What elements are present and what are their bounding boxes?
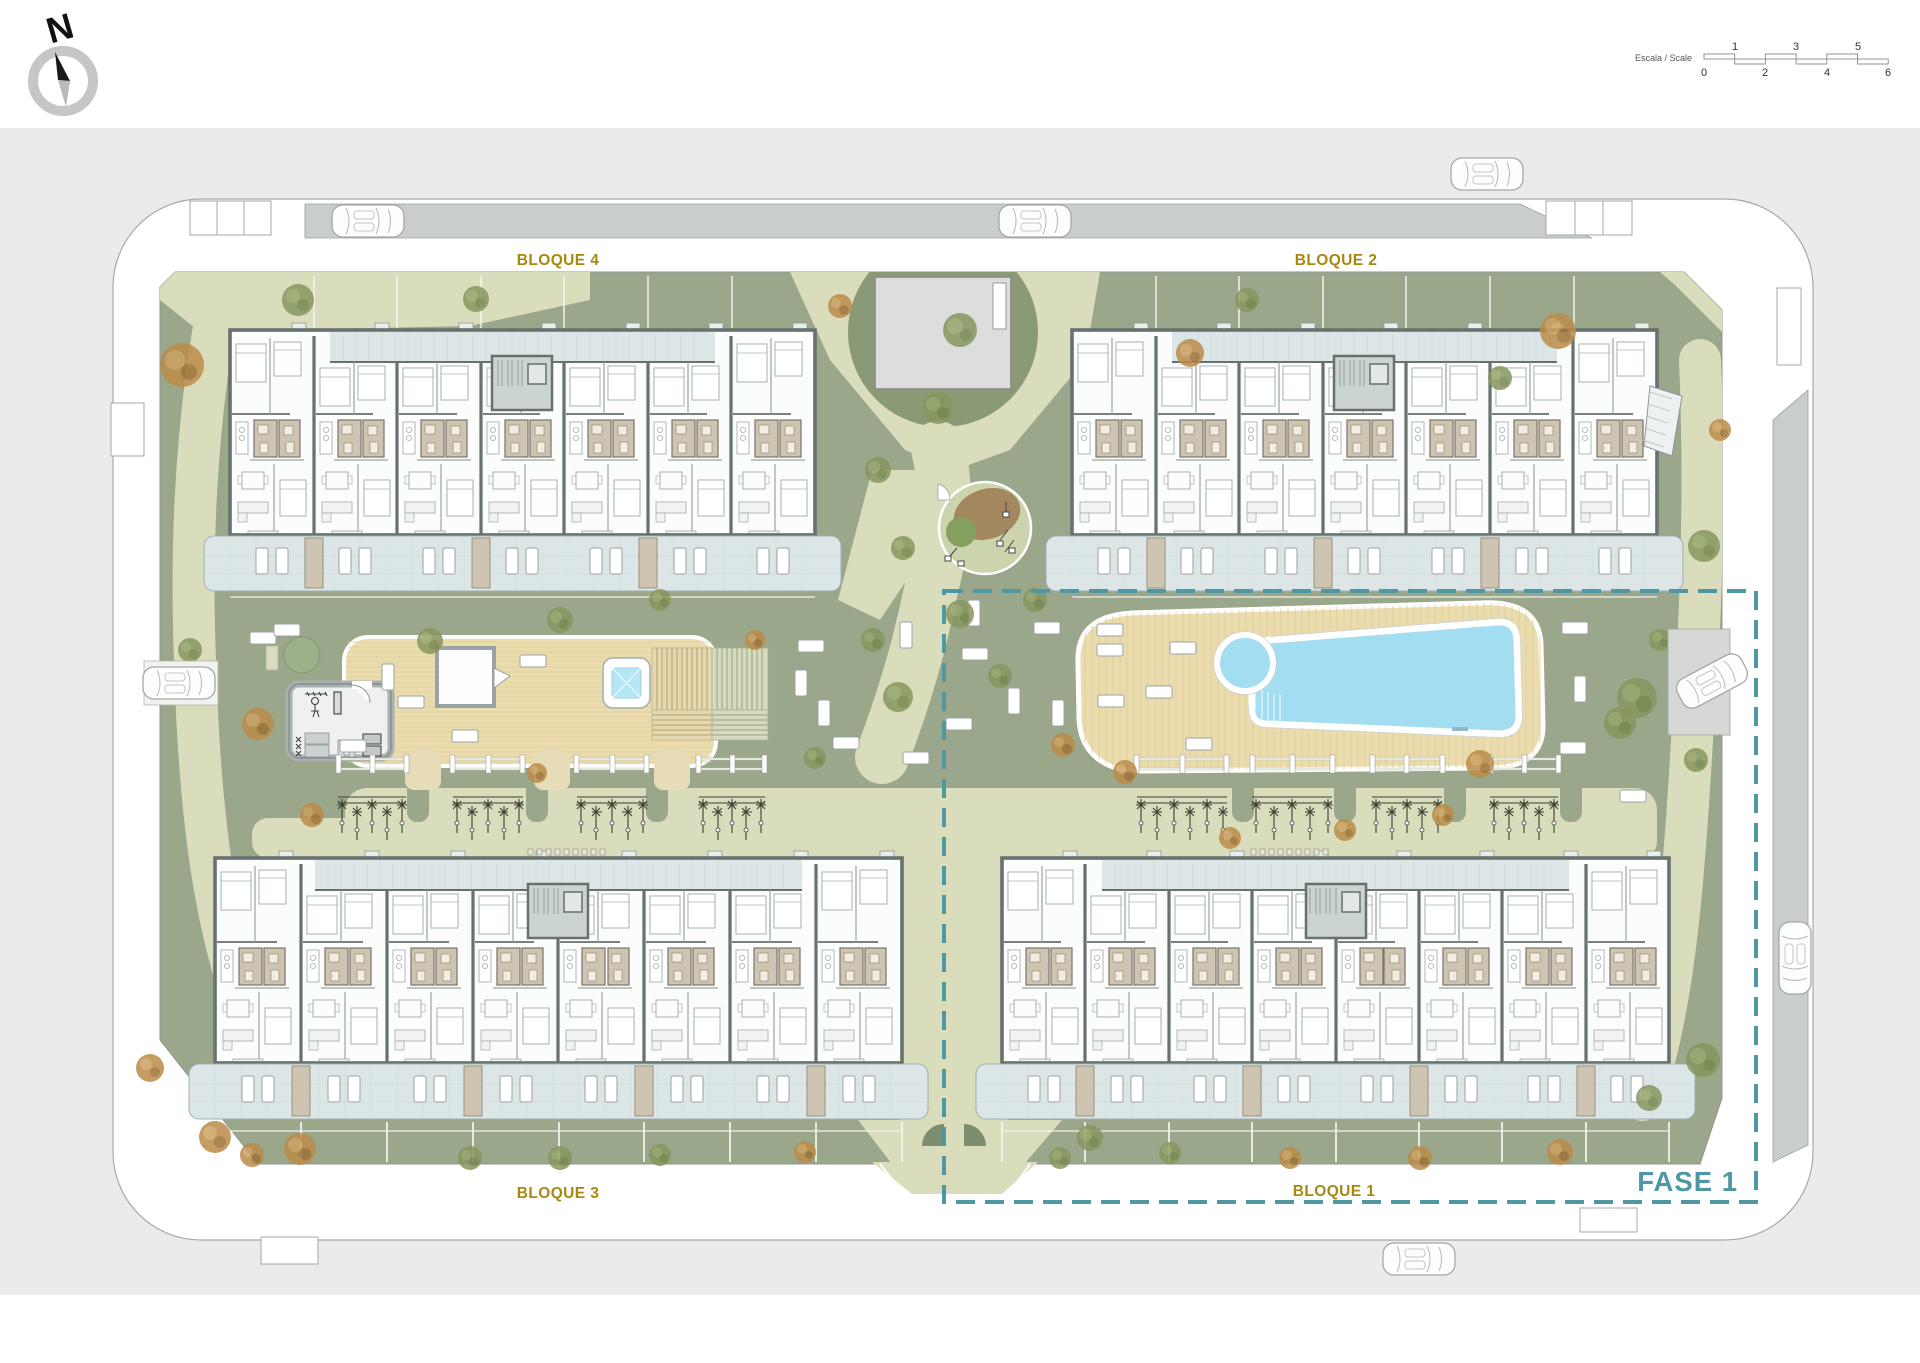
svg-text:6: 6 bbox=[1885, 67, 1891, 79]
svg-text:5: 5 bbox=[1855, 41, 1861, 53]
svg-text:Escala / Scale: Escala / Scale bbox=[1635, 53, 1692, 63]
svg-text:3: 3 bbox=[1793, 41, 1799, 53]
svg-text:BLOQUE 4: BLOQUE 4 bbox=[517, 252, 599, 269]
svg-text:FASE 1: FASE 1 bbox=[1637, 1166, 1738, 1197]
svg-text:2: 2 bbox=[1762, 67, 1768, 79]
svg-text:BLOQUE 2: BLOQUE 2 bbox=[1295, 252, 1377, 269]
svg-text:BLOQUE 3: BLOQUE 3 bbox=[517, 1185, 599, 1202]
svg-text:0: 0 bbox=[1701, 67, 1707, 79]
svg-text:1: 1 bbox=[1732, 41, 1738, 53]
svg-text:4: 4 bbox=[1824, 67, 1830, 79]
svg-text:BLOQUE 1: BLOQUE 1 bbox=[1293, 1183, 1375, 1200]
